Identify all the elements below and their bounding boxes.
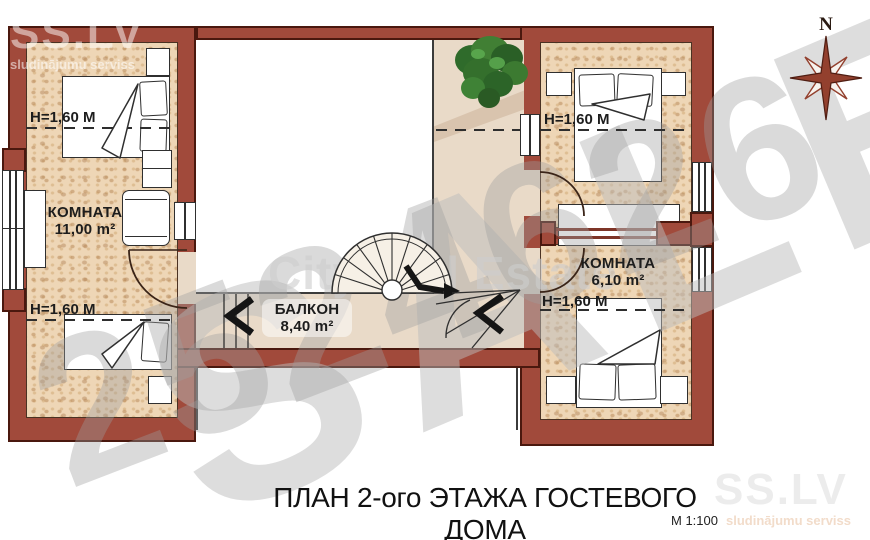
compass-north-label: N [819,14,833,35]
balcony-label: БАЛКОН 8,40 m² [262,299,352,337]
window-interior-right [520,114,540,156]
height-label: Н=1,60 М [30,301,95,318]
door-opening-left-room [178,252,196,304]
nightstand [660,72,686,96]
pillow [617,363,656,400]
void-area [196,40,432,292]
compass-rose: N [786,10,866,128]
brand-logo-text: SS.LV [714,468,851,512]
nightstand [546,72,572,96]
wall-stub-right [690,212,714,247]
nightstand [546,376,576,404]
window-interior-left [174,202,196,240]
height-label: Н=1,60 М [544,111,609,128]
height-label: Н=1,60 М [542,293,607,310]
nightstand [148,376,172,404]
scale-label: М 1:100 [250,513,718,528]
door-opening-right-bottom-room [520,248,540,294]
balcony-edge-line [196,292,434,294]
brand-watermark-bottom-right: SS.LV sludinājumu serviss [714,468,851,527]
window-right-wall-bottom [692,247,712,292]
room-area: 8,40 m² [262,318,352,335]
pillow [578,73,615,106]
wall-stub [2,288,26,312]
partition-line [546,236,656,239]
wall-balcony-bottom [176,348,540,368]
brand-subtitle: sludinājumu serviss [726,514,851,527]
nightstand [146,48,170,76]
room-area: 6,10 m² [573,272,663,289]
compass-star [790,36,862,120]
cabinet [142,150,172,188]
partition-line [546,228,656,231]
wall-top-center [196,26,524,40]
room-label-left: КОМНАТА 11,00 m² [40,204,130,238]
room-label-right: КОМНАТА 6,10 m² [573,255,663,289]
corridor-floor [432,40,524,292]
room-name: БАЛКОН [262,301,352,318]
pillow [616,73,654,107]
pillow [578,363,616,400]
partition-block [656,221,692,246]
nightstand [660,376,688,404]
pillow [139,80,168,116]
window-left-wall [2,170,24,290]
pillow [139,119,167,153]
height-label: Н=1,60 М [30,109,95,126]
room-area: 11,00 m² [40,221,130,238]
window-right-wall-top [692,162,712,212]
partition-block [540,221,556,246]
balcony-floor [196,292,524,348]
pillow [141,321,170,363]
terrace-recess [196,368,518,430]
page-title: ПЛАН 2-ого ЭТАЖА ГОСТЕВОГО ДОМА [250,482,720,540]
room-name: КОМНАТА [40,204,130,221]
door-opening-right-top-room [520,170,540,216]
floor-plan-image: SALE 2524626 CityReal Estate [0,0,870,540]
wall-stub [2,148,26,172]
room-name: КОМНАТА [573,255,663,272]
